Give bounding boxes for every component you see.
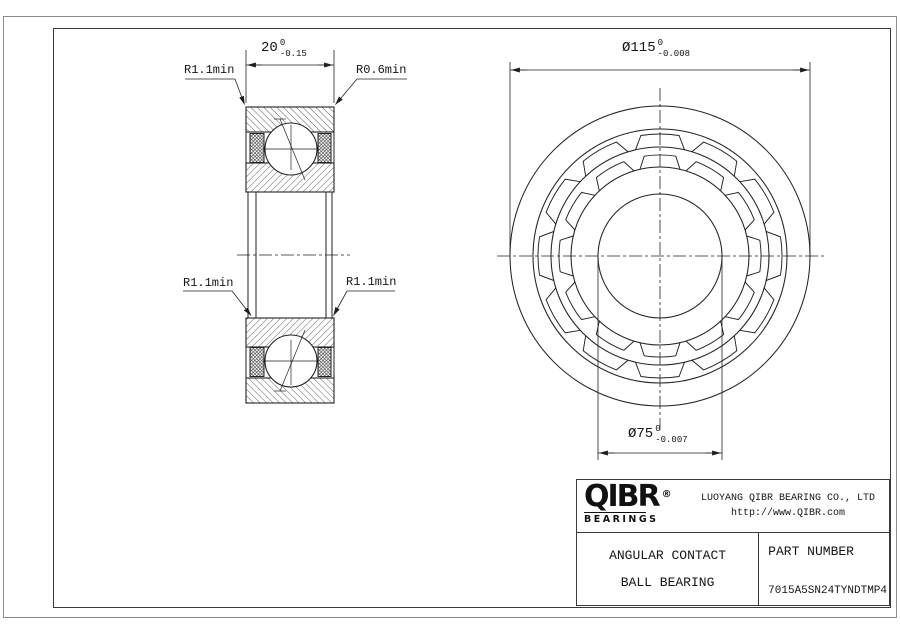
title-block-detail-row: ANGULAR CONTACT BALL BEARING PART NUMBER…: [577, 533, 889, 605]
dimension-od-tolerance: 0 -0.008: [658, 38, 690, 60]
cage-pocket: [596, 321, 634, 350]
cage-top-right: [318, 134, 331, 163]
cage-pocket: [686, 162, 724, 191]
radius-label-inner-left: R1.1min: [183, 277, 233, 289]
cross-section-bottom: [246, 318, 334, 403]
radius-label-outer-top-right: R0.6min: [356, 64, 406, 76]
product-name-line2: BALL BEARING: [621, 575, 715, 590]
cage-pocket: [686, 321, 724, 350]
dimension-outer-diameter: Ø115 0 -0.008: [622, 37, 690, 59]
radius-label-outer-top-left: R1.1min: [184, 64, 234, 76]
product-name-cell: ANGULAR CONTACT BALL BEARING: [577, 533, 759, 605]
product-name-line1: ANGULAR CONTACT: [609, 548, 726, 563]
radius-label-inner-right: R1.1min: [346, 276, 396, 288]
front-view: [497, 62, 824, 460]
logo-text: QIBR: [584, 479, 659, 514]
front-view-centerlines: [497, 88, 824, 430]
dimension-width: 20 0 -0.15: [261, 37, 307, 59]
title-block-header-row: QIBR® BEARINGS LUOYANG QIBR BEARING CO.,…: [577, 480, 889, 533]
company-website: http://www.QIBR.com: [731, 508, 845, 519]
cage-pocket: [566, 282, 595, 320]
cage-pocket: [725, 192, 754, 230]
logo-wordmark: QIBR®: [584, 483, 689, 511]
cross-section-top: [246, 107, 334, 192]
part-number-cell: PART NUMBER 7015A5SN24TYNDTMP4: [759, 533, 889, 605]
cage-pocket: [596, 162, 634, 191]
dimension-bore-value: Ø75: [628, 427, 653, 441]
dimension-width-tolerance: 0 -0.15: [280, 38, 307, 60]
title-block: QIBR® BEARINGS LUOYANG QIBR BEARING CO.,…: [576, 479, 890, 606]
cage-pocket: [725, 282, 754, 320]
dimension-bore-tolerance: 0 -0.007: [655, 424, 687, 446]
cage-pocket: [566, 192, 595, 230]
part-number-value: 7015A5SN24TYNDTMP4: [768, 585, 887, 597]
cage-bottom-left: [250, 348, 264, 377]
registered-trademark-icon: ®: [662, 489, 672, 500]
logo: QIBR® BEARINGS: [577, 480, 689, 532]
part-number-label: PART NUMBER: [768, 544, 887, 559]
cage-bottom-right: [318, 348, 331, 377]
dimension-od-value: Ø115: [622, 41, 656, 55]
company-info: LUOYANG QIBR BEARING CO., LTD http://www…: [689, 480, 889, 532]
logo-subtext: BEARINGS: [584, 512, 646, 525]
dimension-bore-diameter: Ø75 0 -0.007: [628, 423, 688, 445]
drawing-sheet: 20 0 -0.15 Ø115 0 -0.008 Ø75 0 -0.007 R1…: [0, 0, 900, 636]
cross-section-view: [183, 50, 407, 403]
dimension-width-value: 20: [261, 41, 278, 55]
cage-top-left: [250, 134, 264, 163]
company-name: LUOYANG QIBR BEARING CO., LTD: [701, 493, 875, 504]
